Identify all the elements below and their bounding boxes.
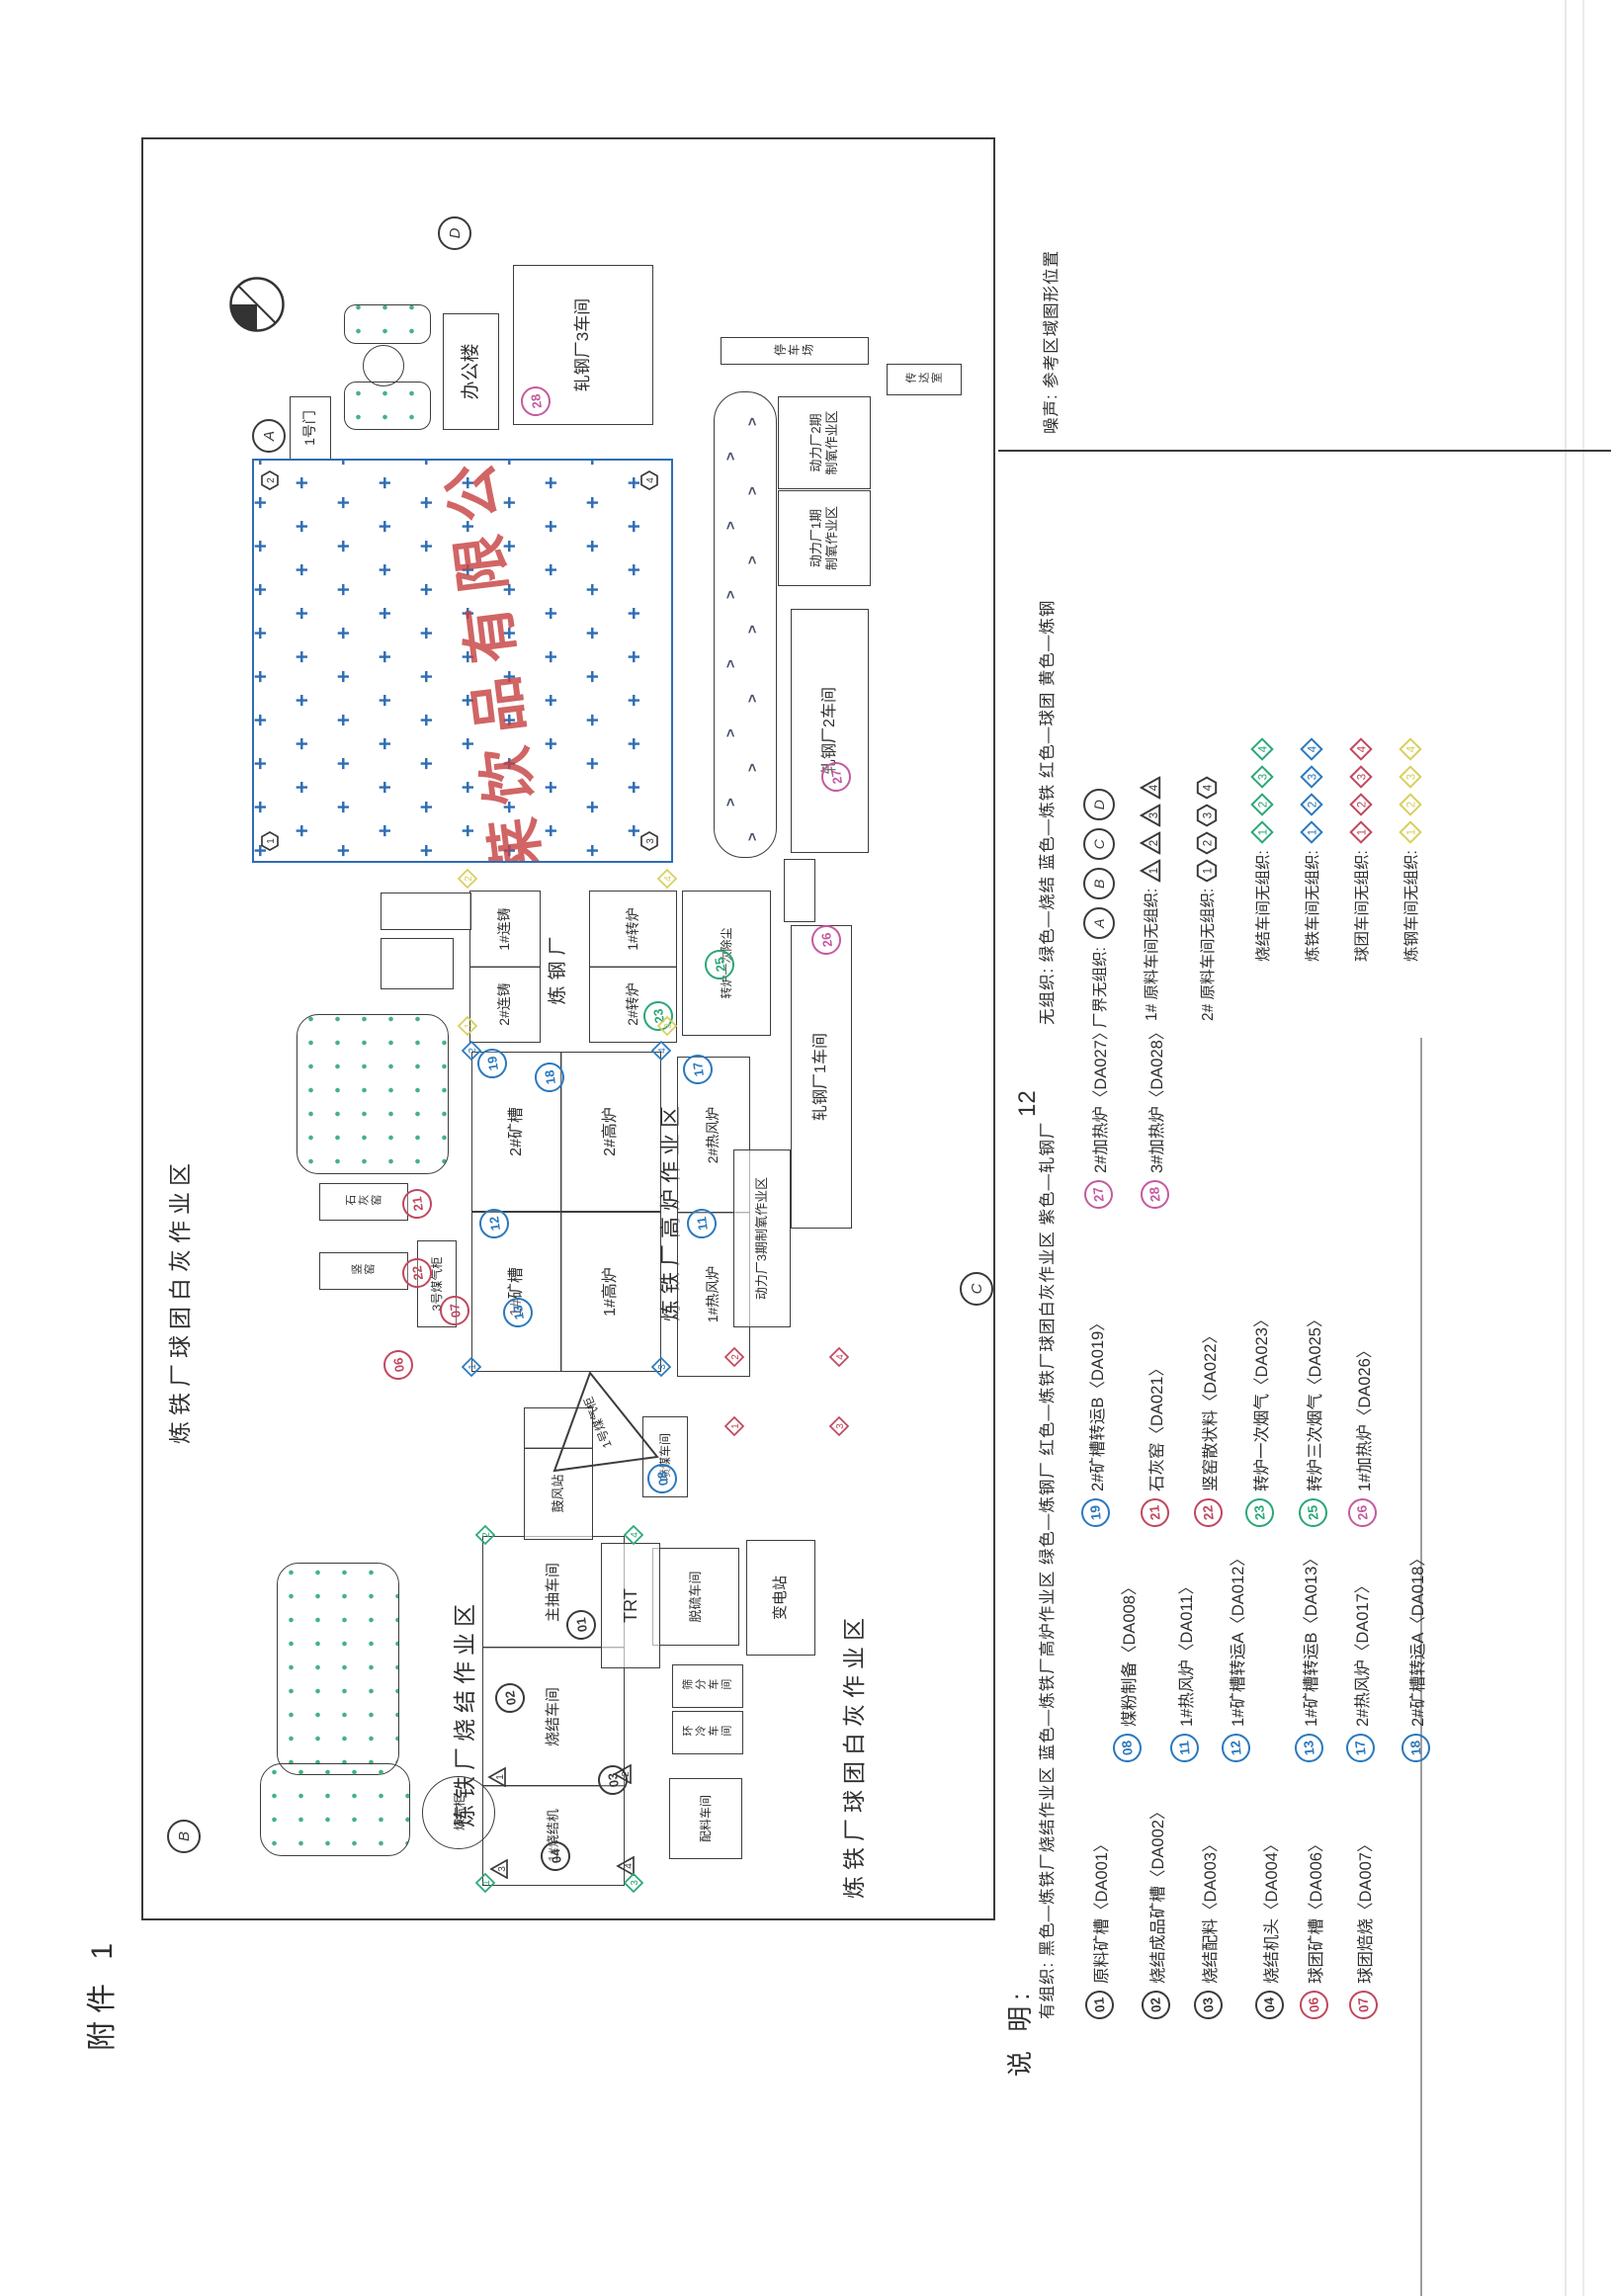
cross-hatch: +: [539, 520, 564, 533]
cross-hatch: +: [373, 737, 398, 750]
svg-text:2: 2: [1308, 802, 1319, 808]
cross-hatch: +: [252, 540, 274, 553]
stamp-06: 06: [382, 1348, 415, 1382]
building-parking: 停车场: [721, 337, 869, 365]
svg-text:3: 3: [1148, 811, 1160, 817]
gas-tank-circle: 煤气柜: [422, 1776, 495, 1849]
cross-hatch: +: [252, 757, 274, 770]
boundary-point-C: C: [960, 1272, 993, 1306]
boundary-point-B: B: [167, 1820, 201, 1853]
building-lime-kiln: 石灰窑: [319, 1183, 408, 1221]
svg-text:2: 2: [730, 1354, 741, 1360]
legend-divider: [998, 450, 1611, 452]
cross-hatch: +: [580, 583, 606, 596]
legend-item-text-01: 原料矿槽〈DA001〉: [1088, 1836, 1112, 1984]
svg-text:1: 1: [1203, 867, 1215, 873]
legend-item-circle-19: 19: [1080, 1497, 1112, 1529]
legend-item-04: 04烧结机头〈DA004〉: [1255, 1836, 1284, 2019]
cross-hatch: +: [252, 459, 274, 466]
legend-item-text-08: 煤粉制备〈DA008〉: [1116, 1579, 1140, 1727]
svg-text:3: 3: [657, 1364, 668, 1370]
legend-item-circle-06: 06: [1299, 1990, 1330, 2021]
legend-item-text-12: 1#矿槽转运A〈DA012〉: [1225, 1550, 1248, 1727]
building-label-parking: 停车场: [774, 344, 815, 359]
legend-item-circle-27: 27: [1083, 1179, 1115, 1211]
legend-item-text-23: 转炉一次烟气〈DA023〉: [1248, 1312, 1272, 1491]
cross-hatch: +: [331, 540, 357, 553]
cross-hatch: +: [252, 627, 274, 639]
cross-hatch: +: [290, 781, 315, 794]
building-small-2: [381, 938, 454, 989]
legend-unorg-marker-3: 3: [1301, 766, 1323, 789]
cross-hatch: +: [290, 694, 315, 707]
legend-item-25: 25转炉三次烟气〈DA025〉: [1299, 1312, 1327, 1527]
cross-hatch: +: [290, 650, 315, 663]
building-desulf: 脱硫车间: [652, 1548, 739, 1646]
legend-item-text-22: 竖窑散状料〈DA022〉: [1197, 1327, 1221, 1491]
legend-item-28: 283#加热炉〈DA028〉: [1141, 1024, 1169, 1209]
svg-text:3: 3: [645, 838, 656, 844]
legend-unorg-row-3: 2# 原料车间无组织:1234: [1196, 778, 1218, 1021]
svg-text:3: 3: [663, 1023, 674, 1029]
cross-hatch: +: [290, 520, 315, 533]
building-caster-1: 1#连铸: [469, 891, 541, 968]
legend-noise-note: 噪声: 参考区域图形位置: [1038, 250, 1061, 434]
building-small-1: [784, 859, 815, 922]
legend-unorg-marker-3: 3: [1140, 804, 1162, 826]
legend-item-01: 01原料矿槽〈DA001〉: [1085, 1836, 1114, 2019]
building-screening: 筛分车间: [672, 1664, 743, 1708]
legend-unorg-marker-3: 3: [1350, 766, 1373, 789]
road-arrow: >: [722, 521, 739, 530]
marker-diamond-red-2: 2: [724, 1347, 744, 1367]
legend-item-circle-18: 18: [1401, 1733, 1432, 1764]
cross-hatch: +: [331, 627, 357, 639]
svg-text:4: 4: [657, 1048, 668, 1054]
cross-hatch: +: [539, 650, 564, 663]
svg-text:4: 4: [1308, 745, 1319, 752]
building-label-caster-1: 1#连铸: [496, 907, 514, 951]
cross-hatch: +: [331, 714, 357, 726]
marker-diamond-yellow-2: 2: [458, 869, 477, 889]
marker-triangle-black-2: 2: [613, 1764, 633, 1784]
legend-unorg-marker-1: 1: [1400, 821, 1422, 844]
svg-text:3: 3: [497, 1866, 508, 1872]
legend-unorg-marker-1: 1: [1196, 859, 1219, 882]
legend-item-text-04: 烧结机头〈DA004〉: [1258, 1836, 1282, 1984]
legend-item-circle-03: 03: [1193, 1990, 1225, 2021]
legend-item-22: 22竖窑散状料〈DA022〉: [1194, 1327, 1223, 1527]
building-label-rolling-mill-1: 轧钢厂1车间: [811, 1033, 831, 1121]
marker-diamond-green-1: 1: [475, 1873, 495, 1893]
cross-hatch: +: [373, 781, 398, 794]
building-label-gate-1: 1号门: [301, 410, 319, 446]
site-plan-frame: 炼铁厂球团白灰作业区炼铁厂烧结作业区炼铁厂高炉作业区炼铁厂球团白灰作业区炼钢厂办…: [141, 137, 995, 1920]
legend-unorg-marker-1: 1: [1251, 821, 1274, 844]
building-label-converter-2: 2#转炉: [625, 982, 642, 1026]
legend-item-text-21: 石灰窑〈DA021〉: [1144, 1360, 1167, 1491]
building-label-rolling-mill-3: 轧钢厂3车间: [572, 298, 593, 391]
legend-unorg-label: 炼钢车间无组织:: [1400, 850, 1421, 962]
cross-hatch: +: [331, 670, 357, 683]
svg-text:1号煤气柜: 1号煤气柜: [580, 1395, 614, 1450]
cross-hatch: +: [373, 650, 398, 663]
svg-text:3: 3: [630, 1880, 640, 1886]
legend-unorg-label: 烧结车间无组织:: [1251, 850, 1273, 962]
legend-unorg-marker-3: 3: [1196, 804, 1219, 826]
building-power-1: 动力厂1期 制氧作业区: [778, 490, 871, 586]
attachment-label: 附件 1: [77, 1935, 121, 2051]
legend-unorg-marker-1: 1: [1350, 821, 1373, 844]
legend-item-text-11: 1#热风炉〈DA011〉: [1173, 1578, 1197, 1727]
legend-unorg-marker-2: 2: [1196, 831, 1219, 854]
legend-item-text-25: 转炉三次烟气〈DA025〉: [1302, 1312, 1325, 1491]
legend-unorg-label: 球团车间无组织:: [1350, 850, 1372, 962]
legend-unorg-label: 厂界无组织:: [1088, 947, 1110, 1028]
legend-unorg-marker-1: 1: [1140, 859, 1162, 882]
cross-hatch: +: [580, 844, 606, 857]
building-gatehouse: 传达室: [887, 364, 962, 395]
svg-text:1: 1: [266, 838, 277, 844]
legend-item-circle-22: 22: [1193, 1497, 1225, 1529]
building-bf-2: 2#高炉: [560, 1052, 661, 1212]
cross-hatch: +: [622, 563, 647, 576]
legend-item-13: 131#矿槽转运B〈DA013〉: [1295, 1550, 1323, 1762]
legend-unorg-marker-2: 2: [1350, 794, 1373, 816]
svg-text:2: 2: [1203, 839, 1215, 845]
building-label-stove-2: 2#热风炉: [705, 1107, 722, 1164]
svg-text:3: 3: [1308, 774, 1319, 780]
cross-hatch: +: [331, 757, 357, 770]
legend-item-text-18: 2#矿槽转运A〈DA018〉: [1404, 1550, 1428, 1727]
marker-diamond-green-2: 2: [475, 1525, 495, 1545]
svg-text:4: 4: [663, 876, 674, 882]
building-label-power-1: 动力厂1期 制氧作业区: [808, 506, 841, 570]
legend-item-text-13: 1#矿槽转运B〈DA013〉: [1298, 1550, 1321, 1727]
cross-hatch: +: [539, 476, 564, 489]
building-label-converter-1: 1#转炉: [625, 907, 642, 951]
cross-hatch: +: [580, 459, 606, 466]
pond-3: [260, 1763, 410, 1856]
legend-item-text-02: 烧结成品矿槽〈DA002〉: [1145, 1804, 1168, 1984]
legend-unorg-marker-A: A: [1083, 907, 1115, 939]
cross-hatch: +: [414, 583, 440, 596]
building-rolling-mill-1: 轧钢厂1车间: [791, 925, 852, 1229]
cross-hatch: +: [373, 694, 398, 707]
cross-hatch: +: [331, 844, 357, 857]
svg-text:1: 1: [730, 1423, 741, 1429]
road-arrow: >: [744, 832, 761, 841]
building-label-power-3: 动力厂3期制氧作业区: [754, 1177, 770, 1300]
building-label-sinter-shop: 烧结车间: [545, 1687, 563, 1746]
building-label-desulf: 脱硫车间: [688, 1572, 704, 1623]
svg-text:4: 4: [1148, 784, 1160, 791]
marker-diamond-yellow-1: 1: [458, 1016, 477, 1036]
svg-text:3: 3: [1357, 774, 1369, 780]
svg-text:1: 1: [1357, 829, 1369, 835]
legend-unorg-marker-4: 4: [1196, 776, 1219, 799]
cross-hatch: +: [622, 737, 647, 750]
legend-unorg-marker-1: 1: [1301, 821, 1323, 844]
legend-unorg-marker-2: 2: [1301, 794, 1323, 816]
cross-hatch: +: [290, 824, 315, 837]
building-small-3: [381, 893, 471, 930]
building-shaft-kiln: 竖窑: [319, 1252, 408, 1290]
legend-item-circle-17: 17: [1345, 1733, 1377, 1764]
road-arrow: >: [722, 590, 739, 599]
cross-hatch: +: [414, 801, 440, 813]
marker-triangle-black-1: 1: [487, 1767, 507, 1787]
cross-hatch: +: [580, 540, 606, 553]
legend-item-text-03: 烧结配料〈DA003〉: [1197, 1836, 1221, 1984]
building-label-bf-1: 1#高炉: [601, 1267, 621, 1317]
legend-item-21: 21石灰窑〈DA021〉: [1141, 1360, 1169, 1527]
marker-diamond-blue-2: 2: [462, 1041, 481, 1061]
svg-text:4: 4: [1406, 745, 1418, 752]
svg-text:4: 4: [1258, 745, 1270, 752]
marker-diamond-red-4: 4: [829, 1347, 849, 1367]
legend-item-06: 06球团矿槽〈DA006〉: [1300, 1836, 1328, 2019]
region-label-steel-plant: 炼钢厂: [543, 893, 569, 1043]
cross-hatch: +: [580, 714, 606, 726]
svg-text:2: 2: [464, 876, 474, 882]
building-label-bunker-2: 2#矿槽: [507, 1107, 527, 1156]
building-label-caster-2: 2#连铸: [496, 982, 514, 1026]
svg-text:1: 1: [495, 1774, 506, 1780]
building-label-cooling: 环冷车间: [682, 1726, 733, 1740]
svg-text:2: 2: [1148, 839, 1160, 845]
legend-item-text-06: 球团矿槽〈DA006〉: [1303, 1836, 1326, 1984]
cross-hatch: +: [331, 801, 357, 813]
cross-hatch: +: [622, 607, 647, 620]
legend-unorg-row-1: 厂界无组织:ABCD: [1083, 789, 1115, 1028]
legend-item-11: 111#热风炉〈DA011〉: [1170, 1578, 1199, 1762]
cross-hatch: +: [331, 459, 357, 466]
svg-text:2: 2: [1258, 802, 1270, 808]
road-arrow: >: [744, 694, 761, 703]
marker-diamond-yellow-4: 4: [657, 869, 677, 889]
cross-hatch: +: [622, 650, 647, 663]
cross-hatch: +: [414, 844, 440, 857]
building-substation: 变电站: [746, 1540, 815, 1656]
svg-text:2: 2: [1357, 802, 1369, 808]
legend-unorg-marker-4: 4: [1301, 738, 1323, 761]
svg-text:4: 4: [1203, 784, 1215, 791]
cross-hatch: +: [414, 670, 440, 683]
road-arrow: >: [722, 659, 739, 668]
legend-item-text-19: 2#矿槽转运B〈DA019〉: [1084, 1315, 1108, 1491]
pond-2: [277, 1563, 399, 1775]
legend-unorg-marker-2: 2: [1400, 794, 1422, 816]
legend-item-text-07: 球团焙烧〈DA007〉: [1352, 1836, 1376, 1984]
building-label-trt: TRT: [620, 1588, 642, 1623]
legend-item-circle-23: 23: [1244, 1497, 1276, 1529]
marker-diamond-blue-1: 1: [462, 1357, 481, 1377]
region-label-pellet-lime-area: 炼铁厂球团白灰作业区: [835, 1612, 869, 1899]
legend-unorg-marker-4: 4: [1400, 738, 1422, 761]
region-label-pellet-lime-area-top: 炼铁厂球团白灰作业区: [161, 1157, 195, 1444]
cross-hatch: +: [539, 737, 564, 750]
cross-hatch: +: [373, 476, 398, 489]
cross-hatch: +: [252, 714, 274, 726]
cross-hatch: +: [290, 737, 315, 750]
legend-unorg-marker-3: 3: [1251, 766, 1274, 789]
legend-unorg-marker-D: D: [1083, 789, 1115, 820]
cross-hatch: +: [539, 563, 564, 576]
legend-item-circle-26: 26: [1347, 1497, 1379, 1529]
building-power-2: 动力厂2期 制氧作业区: [778, 396, 871, 489]
legend-item-circle-01: 01: [1084, 1990, 1116, 2021]
building-label-batching: 配料车间: [699, 1795, 714, 1842]
svg-text:1: 1: [464, 1023, 474, 1029]
legend-item-03: 03烧结配料〈DA003〉: [1194, 1836, 1223, 2019]
svg-text:2: 2: [621, 1771, 632, 1777]
cross-hatch: +: [290, 607, 315, 620]
cross-hatch: +: [373, 824, 398, 837]
pond-1: [297, 1014, 449, 1174]
building-office: 办公楼: [443, 313, 499, 430]
cross-hatch: +: [622, 781, 647, 794]
cross-hatch: +: [580, 627, 606, 639]
legend-item-circle-12: 12: [1221, 1733, 1252, 1764]
road-arrow: >: [722, 798, 739, 807]
legend-unorg-row-6: 球团车间无组织:1234: [1350, 739, 1372, 962]
svg-text:2: 2: [481, 1532, 492, 1538]
legend-item-text-28: 3#加热炉〈DA028〉: [1144, 1024, 1167, 1173]
shrub-1: [344, 304, 431, 344]
building-gate-1: 1号门: [290, 396, 331, 460]
building-label-substation: 变电站: [772, 1575, 791, 1620]
cross-hatch: +: [331, 583, 357, 596]
svg-text:1: 1: [1258, 829, 1270, 835]
svg-text:2: 2: [266, 477, 277, 483]
building-label-power-2: 动力厂2期 制氧作业区: [808, 411, 841, 475]
marker-diamond-red-3: 3: [829, 1416, 849, 1436]
building-label-office: 办公楼: [460, 344, 483, 400]
legend-item-18: 182#矿槽转运A〈DA018〉: [1401, 1550, 1430, 1762]
building-label-screening: 筛分车间: [682, 1679, 733, 1693]
svg-text:4: 4: [835, 1354, 846, 1360]
legend-item-circle-25: 25: [1298, 1497, 1329, 1529]
svg-text:3: 3: [1203, 811, 1215, 817]
cross-hatch: +: [252, 583, 274, 596]
legend-item-circle-02: 02: [1141, 1990, 1172, 2021]
svg-text:4: 4: [630, 1532, 640, 1538]
marker-hexagon-black-2: 2: [260, 470, 280, 490]
legend-title: 说 明:: [1000, 1988, 1037, 2077]
legend-item-02: 02烧结成品矿槽〈DA002〉: [1142, 1804, 1170, 2019]
building-caster-2: 2#连铸: [469, 966, 541, 1043]
building-power-3: 动力厂3期制氧作业区: [733, 1149, 791, 1327]
legend-unorg-marker-C: C: [1083, 828, 1115, 860]
building-label-bf-2: 2#高炉: [601, 1107, 621, 1156]
legend-unorg-marker-4: 4: [1140, 776, 1162, 799]
cross-hatch: +: [373, 563, 398, 576]
legend-item-circle-04: 04: [1254, 1990, 1286, 2021]
road-arrow: >: [744, 486, 761, 495]
road-arrow: >: [722, 728, 739, 737]
legend-item-27: 272#加热炉〈DA027〉: [1084, 1024, 1113, 1209]
legend-organized-header: 有组织: 黑色—炼铁厂烧结作业区 蓝色—炼铁厂高炉作业区 绿色—炼钢厂 红色—炼…: [1034, 1121, 1058, 2019]
compass-icon: [228, 276, 286, 333]
boundary-point-A: A: [252, 419, 286, 453]
legend-unorg-marker-4: 4: [1350, 738, 1373, 761]
legend-item-circle-11: 11: [1169, 1733, 1201, 1764]
marker-diamond-red-1: 1: [724, 1416, 744, 1436]
legend-item-text-27: 2#加热炉〈DA027〉: [1087, 1024, 1111, 1173]
building-label-gatehouse: 传达室: [905, 373, 944, 386]
road-arrow: >: [744, 555, 761, 564]
legend-unorg-marker-3: 3: [1400, 766, 1422, 789]
building-cooling: 环冷车间: [672, 1711, 743, 1754]
legend-unorg-marker-4: 4: [1251, 738, 1274, 761]
legend-unorg-marker-B: B: [1083, 868, 1115, 899]
marker-diamond-blue-3: 3: [651, 1357, 671, 1377]
legend-unorg-label: 2# 原料车间无组织:: [1196, 889, 1218, 1021]
road: >>>>>>>>>>>>>: [714, 391, 777, 858]
raw-material-yard: ++++++++++++++++++++++++++++++++++++++++…: [252, 459, 673, 863]
boundary-point-D: D: [438, 216, 471, 250]
building-trt: TRT: [601, 1543, 660, 1668]
gas-holder-1: 1号煤气柜: [551, 1370, 661, 1474]
legend-unorg-marker-2: 2: [1251, 794, 1274, 816]
building-bf-1: 1#高炉: [560, 1212, 661, 1372]
cross-hatch: +: [414, 714, 440, 726]
legend-item-23: 23转炉一次烟气〈DA023〉: [1245, 1312, 1274, 1527]
legend-item-12: 121#矿槽转运A〈DA012〉: [1222, 1550, 1250, 1762]
svg-text:3: 3: [1258, 774, 1270, 780]
cross-hatch: +: [414, 627, 440, 639]
svg-text:3: 3: [1406, 774, 1418, 780]
page-number: 12: [1014, 1090, 1042, 1117]
cross-hatch: +: [290, 476, 315, 489]
rotated-drawing-stage: 附件 1 12 炼铁厂球团白灰作业区炼铁厂烧结作业区炼铁厂高炉作业区炼铁厂球团白…: [0, 0, 1613, 2296]
marker-diamond-green-4: 4: [624, 1525, 643, 1545]
cross-hatch: +: [252, 670, 274, 683]
cross-hatch: +: [373, 607, 398, 620]
cross-hatch: +: [290, 563, 315, 576]
legend-item-circle-21: 21: [1140, 1497, 1171, 1529]
svg-text:2: 2: [1406, 802, 1418, 808]
svg-text:1: 1: [1308, 829, 1319, 835]
legend-item-circle-13: 13: [1294, 1733, 1325, 1764]
legend-item-26: 261#加热炉〈DA026〉: [1348, 1342, 1377, 1527]
marker-hexagon-black-3: 3: [639, 831, 659, 851]
legend-unorganized-header: 无组织: 绿色—烧结 蓝色—炼铁 红色—球团 黄色—炼钢: [1034, 600, 1058, 1025]
cross-hatch: +: [539, 694, 564, 707]
cross-hatch: +: [580, 496, 606, 509]
cross-hatch: +: [252, 496, 274, 509]
legend-unorg-row-7: 炼钢车间无组织:1234: [1400, 739, 1421, 962]
legend-item-19: 192#矿槽转运B〈DA019〉: [1081, 1315, 1110, 1527]
legend-unorg-marker-2: 2: [1140, 831, 1162, 854]
legend-unorg-row-2: 1# 原料车间无组织:1234: [1140, 778, 1161, 1021]
building-batching: 配料车间: [669, 1778, 742, 1859]
road-arrow: >: [744, 763, 761, 772]
legend-item-17: 172#热风炉〈DA017〉: [1346, 1577, 1375, 1762]
svg-text:4: 4: [1357, 745, 1369, 752]
cross-hatch: +: [373, 520, 398, 533]
legend-item-text-26: 1#加热炉〈DA026〉: [1351, 1342, 1375, 1491]
cross-hatch: +: [622, 694, 647, 707]
marker-hexagon-black-4: 4: [639, 470, 659, 490]
building-rolling-mill-2: 轧钢厂2车间: [791, 609, 869, 853]
cross-hatch: +: [331, 496, 357, 509]
svg-text:4: 4: [624, 1863, 635, 1869]
marker-diamond-blue-4: 4: [651, 1041, 671, 1061]
legend-unorg-row-4: 烧结车间无组织:1234: [1251, 739, 1273, 962]
cross-hatch: +: [580, 670, 606, 683]
